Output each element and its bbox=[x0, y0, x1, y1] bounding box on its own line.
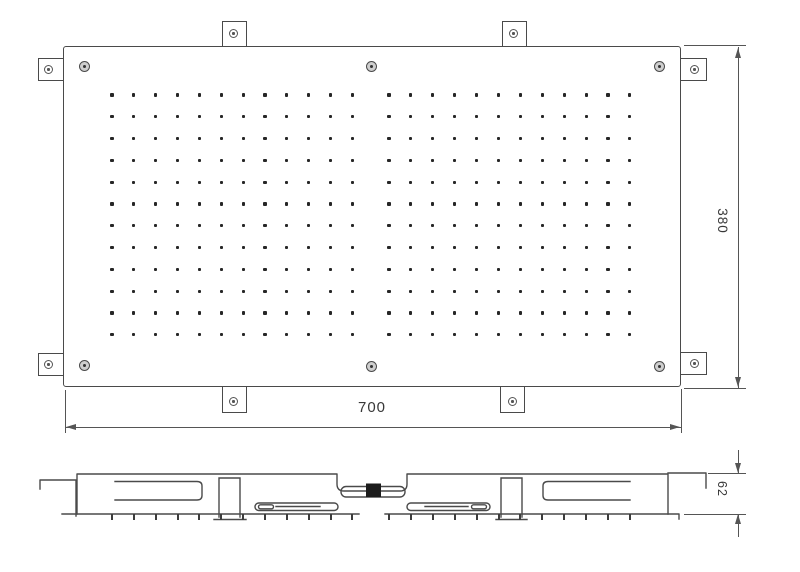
nozzle-tick bbox=[498, 514, 500, 520]
nozzle-tick bbox=[242, 514, 244, 520]
nozzle-tick bbox=[629, 514, 631, 520]
nozzle-tick bbox=[351, 514, 353, 520]
nozzle-tick bbox=[388, 514, 390, 520]
nozzle-tick bbox=[410, 514, 412, 520]
side-right-hook bbox=[668, 473, 706, 488]
rail-clip-left bbox=[259, 505, 274, 509]
nozzle-tick bbox=[330, 514, 332, 520]
nozzle-tick bbox=[432, 514, 434, 520]
water-inlet-block bbox=[366, 484, 381, 498]
side-view-profile bbox=[0, 0, 800, 572]
nozzle-tick bbox=[198, 514, 200, 520]
side-tab-right bbox=[496, 478, 527, 520]
nozzle-tick bbox=[519, 514, 521, 520]
nozzle-tick bbox=[607, 514, 609, 520]
nozzle-tick bbox=[308, 514, 310, 520]
side-slot-left bbox=[115, 482, 202, 501]
nozzle-tick bbox=[563, 514, 565, 520]
nozzle-tick bbox=[111, 514, 113, 520]
nozzle-tick bbox=[220, 514, 222, 520]
dim-arrow-down-icon bbox=[735, 463, 741, 473]
nozzle-tick bbox=[454, 514, 456, 520]
nozzle-tick bbox=[177, 514, 179, 520]
nozzle-tick bbox=[133, 514, 135, 520]
dim-arrow-up-icon bbox=[735, 514, 741, 524]
rail-clip-right bbox=[472, 505, 487, 509]
side-slot-right bbox=[543, 482, 630, 501]
nozzle-tick bbox=[264, 514, 266, 520]
dim-depth-label: 62 bbox=[715, 474, 729, 504]
nozzle-tick bbox=[286, 514, 288, 520]
side-left-hook bbox=[40, 480, 76, 516]
side-bottom-right bbox=[385, 514, 679, 519]
nozzle-tick bbox=[476, 514, 478, 520]
technical-drawing-canvas: 700 380 62 bbox=[0, 0, 800, 572]
nozzle-tick bbox=[541, 514, 543, 520]
nozzle-tick bbox=[585, 514, 587, 520]
nozzle-tick bbox=[155, 514, 157, 520]
